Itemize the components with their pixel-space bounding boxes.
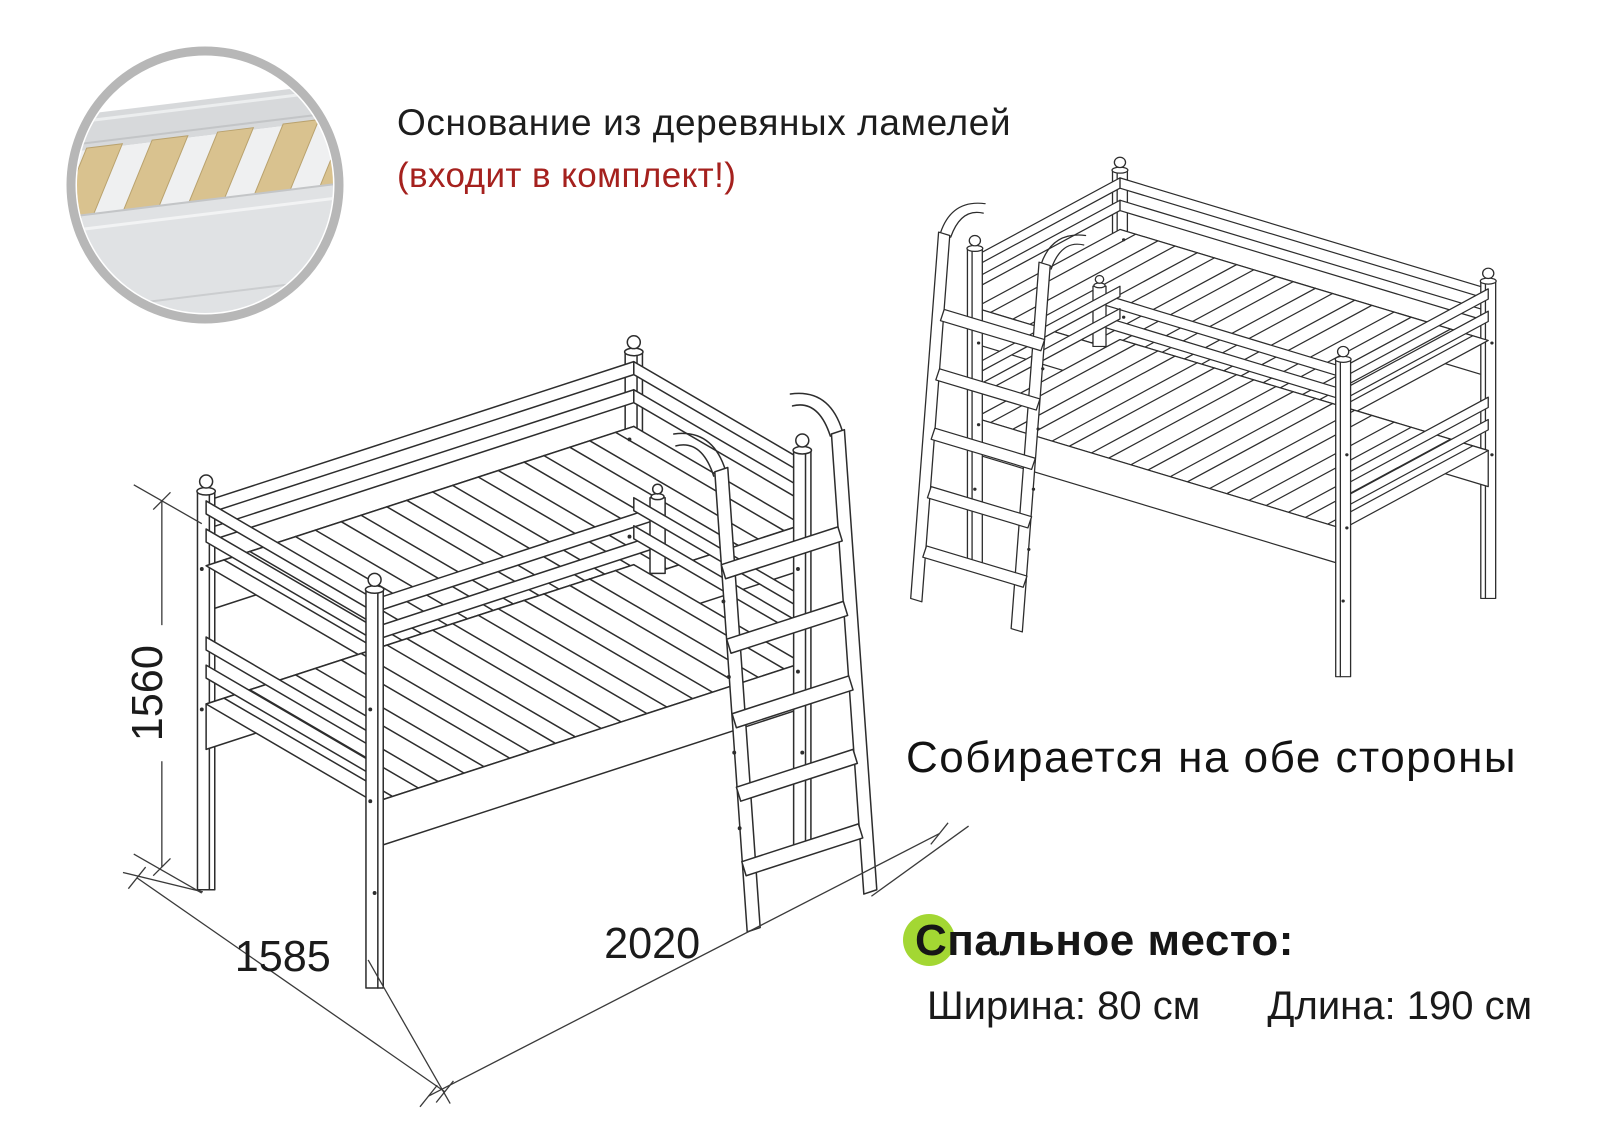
sleeping-area-block: Спальное место: Ширина: 80 см Длина: 190…	[905, 916, 1588, 1029]
sleeping-area-heading-row: Спальное место:	[905, 916, 1294, 966]
height-dimension-label: 1560	[124, 645, 172, 741]
width-dimension-label: 1585	[235, 933, 331, 981]
length-dimension-label: 2020	[604, 920, 700, 968]
sleeping-area-heading: Спальное место:	[905, 916, 1294, 965]
sleeping-area-specs: Ширина: 80 см Длина: 190 см	[905, 984, 1588, 1029]
product-infographic: Основание из деревяных ламелей (входит в…	[0, 0, 1600, 1135]
both-sides-caption: Собирается на обе стороны	[906, 733, 1517, 783]
bunk-bed-right-drawing	[911, 157, 1496, 676]
length-spec: Длина: 190 см	[1267, 984, 1532, 1028]
bunk-bed-left-drawing: 1560 1585 2020	[123, 336, 969, 1107]
width-spec: Ширина: 80 см	[927, 984, 1200, 1028]
